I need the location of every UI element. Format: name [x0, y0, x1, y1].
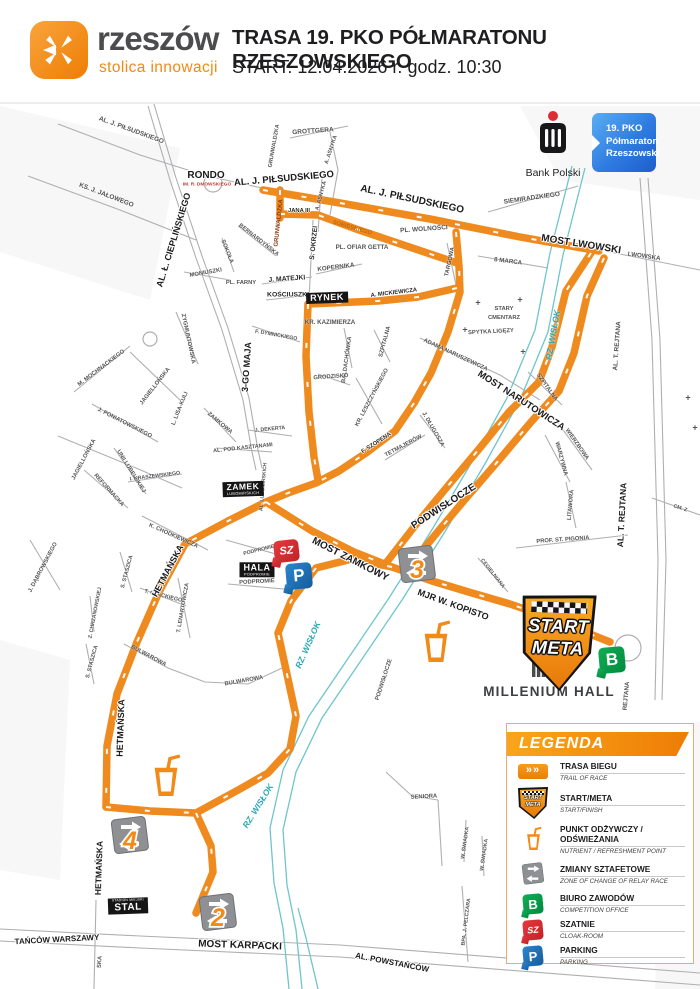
event-badge-line: Rzeszowski	[606, 148, 656, 161]
street-label: HETMAŃSKA	[115, 699, 126, 757]
street-label: +	[517, 296, 522, 305]
street-label: AL. J. PIŁSUDSKIEGO	[359, 184, 464, 216]
cloakroom-icon: SZ	[522, 919, 544, 941]
street-label: T. LENARTOWICZA	[177, 583, 191, 634]
legend-item-sublabel: ZONE OF CHANGE OF RELAY RACE	[560, 878, 685, 885]
street-label: AL. J. PIŁSUDSKIEGO	[234, 170, 335, 188]
street-label: K. CHODKIEWICZA	[148, 524, 199, 551]
street-label: SOKOŁA	[219, 239, 234, 264]
svg-text:3: 3	[410, 556, 424, 584]
event-badge-line: 19. PKO	[606, 123, 656, 136]
legend-item-label: START/META	[560, 793, 685, 806]
street-label: A. ASNYKA	[315, 181, 328, 211]
street-label: SZPITALNA	[534, 373, 557, 403]
street-label: GROTTGERA	[292, 127, 334, 136]
legend-item: »»TRASA BIEGUTRAIL OF RACE	[515, 761, 685, 782]
street-label: RZ. WISŁOK	[241, 783, 275, 830]
street-label: SZPITALNA	[379, 326, 393, 359]
street-label: PODWISŁOCZE	[376, 659, 395, 702]
street-label: KR. KAZIMIERZA	[305, 320, 356, 326]
street-label: JANA III	[288, 209, 310, 215]
legend-item: ZMIANY SZTAFETOWEZONE OF CHANGE OF RELAY…	[515, 860, 685, 888]
street-label: HETMAŃSKA	[151, 544, 186, 599]
street-label: MOST NARUTOWICZA	[476, 369, 566, 432]
street-label: F. SZOPENA	[361, 432, 393, 455]
street-label: BALDACHÓWKA	[342, 336, 354, 383]
route-line-icon: »»	[518, 764, 548, 779]
street-label: PL. OFIAR GETTA	[336, 245, 389, 251]
street-label: MOST ZAMKOWY	[310, 536, 390, 583]
bank-label: Bank Polski	[518, 167, 588, 179]
legend-item-sublabel: CLOAK-ROOM	[560, 933, 685, 940]
street-label: ADAMA NARUSZEWICZA	[422, 339, 488, 374]
legend-item-sublabel: START/FINISH	[560, 807, 685, 814]
start-meta-marker: START META	[519, 593, 596, 693]
legend-item-label: ZMIANY SZTAFETOWE	[560, 864, 685, 877]
street-label: PODPROMIE	[239, 579, 275, 587]
street-label: 3-GO MAJA	[241, 342, 253, 393]
street-label: GRUNWALDZKA	[268, 124, 281, 168]
street-label: HETMAŃSKA	[94, 841, 104, 896]
street-label: CEGIELNIANA	[479, 558, 505, 589]
street-label: +	[462, 326, 467, 335]
rzeszow-logo-icon	[30, 21, 88, 79]
legend-item-label: SZATNIE	[560, 919, 685, 932]
place-box-label: STADION MIEJSKISTAL	[108, 897, 148, 914]
checker-strip	[531, 601, 587, 614]
street-label: J. PONIATOWSKIEGO	[96, 408, 152, 441]
event-badge: 19. PKO Półmaraton Rzeszowski	[592, 113, 656, 172]
street-label: KS. J. JAŁOWEGO	[78, 183, 134, 210]
refreshment-cup-icon	[149, 753, 183, 801]
svg-text:4: 4	[122, 827, 137, 855]
street-label: TETMAJERÓW	[384, 435, 423, 459]
street-label: MOST LWOWSKI	[540, 234, 621, 256]
race-map-poster: AL. J. PIŁSUDSKIEGOKS. J. JAŁOWEGORONDOI…	[0, 0, 700, 989]
street-label: +	[692, 424, 697, 433]
relay-change-marker: 3	[395, 541, 439, 594]
street-label: CMENTARZ	[488, 316, 520, 322]
street-label: Z. CHRZANOWSKIEJ	[88, 587, 103, 639]
street-label: T. CZACKIEGO	[144, 590, 183, 605]
legend-item: STARTMETASTART/METASTART/FINISH	[515, 787, 685, 819]
street-label: J. DŁUGOSZA	[420, 412, 445, 449]
street-label: LITAWORA	[568, 490, 576, 521]
street-label: IM. R. DMOWSKIEGO	[183, 184, 232, 189]
street-label: S. STASZICA	[86, 645, 100, 679]
street-label: I. KRASZEWSKIEGO	[130, 471, 181, 482]
street-label: BULWAROWA	[224, 676, 263, 688]
meta-label: META	[523, 637, 592, 660]
street-label: JAGIELLOŃSKA	[72, 439, 98, 482]
legend-item-label: PARKING	[560, 945, 685, 958]
refreshment-point-marker	[419, 619, 453, 672]
street-label: +	[685, 394, 690, 403]
street-label: AL. J. PIŁSUDSKIEGO	[98, 116, 165, 146]
legend-items: »»TRASA BIEGUTRAIL OF RACESTARTMETASTART…	[507, 761, 693, 966]
start-label: START	[524, 615, 593, 638]
start-meta-icon: STARTMETA	[518, 787, 548, 819]
parking-icon: P	[522, 945, 544, 967]
legend-item-label: BIURO ZAWODÓW	[560, 893, 685, 906]
street-label: PODWISŁOCZE	[410, 483, 478, 532]
street-label: ZYGMUNTOWSKA	[179, 314, 195, 365]
street-label: PROF. ST. PIGONIA	[536, 536, 589, 545]
street-label: F. DYMNICKIEGO	[255, 330, 298, 343]
street-label: KR. LESZCZYŃSKIEGO	[355, 368, 391, 428]
place-box-label: ZAMEKLUBOMIRSKICH	[222, 481, 263, 497]
pko-icon	[530, 109, 576, 161]
pko-bank-logo: Bank Polski	[518, 109, 588, 179]
street-label: A. MICKIEWICZA	[370, 288, 417, 299]
street-label: +	[475, 299, 480, 308]
street-label: RZ. WISŁOK	[544, 310, 561, 361]
place-box-label: RYNEK	[306, 292, 348, 305]
street-label: A. ASNYKA	[325, 135, 340, 165]
legend-item-label: PUNKT ODŻYWCZY / ODŚWIEŻANIA	[560, 824, 685, 847]
street-label: STARY	[494, 307, 513, 313]
street-label: REFORMACKA	[92, 474, 124, 509]
street-label: TARGOWA	[445, 247, 457, 277]
legend: LEGENDA »»TRASA BIEGUTRAIL OF RACESTARTM…	[506, 723, 694, 964]
legend-item-sublabel: PARKING	[560, 959, 685, 966]
start-meta-body: START META	[522, 596, 593, 689]
street-label: S. STASZICA	[121, 555, 135, 589]
city-slogan: stolica innowacji	[99, 59, 218, 77]
street-label: AL. LUBOMIRSKICH	[259, 463, 268, 512]
street-label: W. ŚWIADKA	[461, 827, 471, 860]
street-label: S. OKRZEI	[310, 226, 320, 261]
event-badge-line: Półmaraton	[606, 136, 656, 149]
street-label: RZ. WISŁOK	[294, 620, 322, 669]
street-label: BULWAROWA	[129, 645, 166, 668]
legend-item: SZSZATNIECLOAK-ROOM	[515, 919, 685, 940]
header: rzeszów stolica innowacji TRASA 19. PKO …	[0, 0, 700, 104]
legend-item-sublabel: COMPETITION OFFICE	[560, 907, 685, 914]
refreshment-cup-icon	[524, 826, 543, 853]
relay-icon: 3	[395, 541, 439, 589]
street-label: PL. FARNY	[226, 281, 256, 287]
street-label: M. MOCHNACKIEGO	[77, 350, 126, 389]
street-label: SIEMIRADZKIEGO	[503, 192, 560, 206]
svg-text:2: 2	[210, 904, 225, 932]
street-label: ZAMKOWA	[205, 412, 232, 436]
street-label: J. DĄBROWSKIEGO	[28, 542, 59, 594]
street-label: PODPROMIE	[243, 545, 275, 558]
page-subtitle: START: 12.04.2026 r. godz. 10:30	[232, 57, 502, 78]
relay-icon: 4	[108, 812, 152, 860]
street-label: SENIORA	[411, 794, 438, 801]
street-label: BPA. J. PELCZARA	[462, 898, 473, 946]
refreshment-point-marker	[149, 753, 183, 806]
street-label: KOŚCIUSZKI	[267, 293, 309, 300]
street-label: TAŃCÓW WARSZAWY	[14, 934, 99, 946]
street-label: AL. Ł. CIEPLIŃSKIEGO	[155, 192, 192, 288]
street-label: WIERZBOWA	[563, 428, 589, 461]
street-label: BERNARDYŃSKA	[237, 224, 279, 259]
parking-marker: P	[285, 562, 313, 590]
street-label: AL. T. REJTANA	[616, 483, 628, 548]
legend-item-sublabel: NUTRIENT / REFRESHMENT POINT	[560, 848, 685, 855]
relay-change-marker: 4	[108, 812, 152, 865]
street-label: MJR W. KOPISTO	[416, 588, 489, 622]
street-label: AL. POWSTAŃCÓW	[354, 952, 429, 974]
street-label: MOST KARPACKI	[198, 940, 282, 953]
street-label: UNII LUBELSKIEJ	[114, 450, 145, 495]
street-label: AL. POD KASZTANAMI	[213, 443, 273, 455]
legend-item: PUNKT ODŻYWCZY / ODŚWIEŻANIANUTRIENT / R…	[515, 824, 685, 855]
city-name: rzeszów	[97, 20, 218, 58]
street-label: J. MATEJKI	[268, 275, 305, 284]
street-label: W. ŚWIADKA	[480, 839, 490, 872]
cloakroom-marker: SZ	[273, 539, 300, 563]
street-label: JAGIELLOŃSKA	[140, 367, 173, 406]
rzeszow-compass-icon	[37, 28, 81, 72]
relay-icon	[520, 860, 546, 888]
relay-change-marker: 2	[196, 889, 240, 942]
street-label: KOPERNIKA	[317, 263, 355, 274]
legend-item-sublabel: TRAIL OF RACE	[560, 775, 685, 782]
street-label: WARZYWNA	[553, 441, 568, 476]
street-label: +	[520, 348, 525, 357]
street-label: SKA	[98, 956, 105, 969]
street-label: J. DEKERTA	[255, 426, 286, 434]
street-label: GRUNWALDZKA	[274, 199, 285, 247]
street-label: SOBIESKIEGO	[332, 221, 373, 238]
street-label: LWOWSKA	[627, 252, 661, 263]
street-label: 8 MARCA	[494, 257, 523, 267]
refreshment-cup-icon	[419, 619, 453, 667]
street-label: AL. T. REJTANA	[613, 321, 623, 371]
legend-item: BBIURO ZAWODÓWCOMPETITION OFFICE	[515, 893, 685, 914]
street-label: RONDO	[187, 171, 224, 181]
street-label: SPYTKA LIGĘZY	[468, 329, 514, 337]
competition-office-icon: B	[522, 893, 544, 915]
place-box-label: HALAPODPROMIE	[240, 562, 275, 577]
legend-item: PPARKINGPARKING	[515, 945, 685, 966]
street-label: PL. WOLNOŚCI	[400, 225, 448, 235]
street-label: MONIUSZKI	[189, 268, 222, 279]
legend-title: LEGENDA	[507, 732, 689, 756]
relay-icon: 2	[196, 889, 240, 937]
street-label: CM. Z	[672, 504, 687, 513]
street-label: L. LISA-KULI	[172, 391, 191, 426]
legend-item-label: TRASA BIEGU	[560, 761, 685, 774]
street-label: GRODZISKO	[313, 374, 348, 382]
